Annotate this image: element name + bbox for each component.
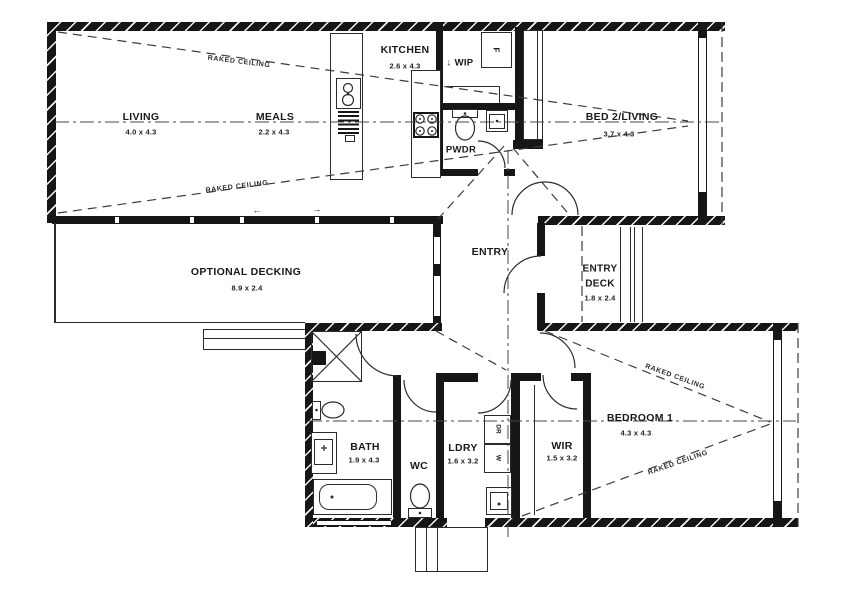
room-label-wip: ↓ WIP <box>447 58 474 69</box>
room-label-entry: ENTRY <box>472 246 509 258</box>
raked-ceiling-line <box>545 331 770 422</box>
raked-ceiling-line <box>58 126 688 213</box>
burner-dot <box>431 118 433 120</box>
burner-dot <box>419 130 421 132</box>
front-door-arc <box>504 256 541 293</box>
room-label-bedroom1: BEDROOM 1 <box>607 412 673 424</box>
raked-ceiling-line <box>522 424 770 516</box>
roof-valley-line <box>438 146 504 219</box>
room-label-decking: OPTIONAL DECKING <box>191 266 301 278</box>
wc-door-arc <box>404 380 436 412</box>
cistern-dot <box>464 112 467 115</box>
entry-double-door-arc <box>512 182 578 215</box>
room-label-entry-deck-1: ENTRY <box>582 264 617 275</box>
roof-valley-line <box>436 331 506 370</box>
slide-arrow-right-icon: → <box>312 204 321 214</box>
basin-dot <box>496 120 499 123</box>
sink-bowl <box>343 95 354 106</box>
room-dims-bed2: 3.7 x 4.3 <box>604 130 635 139</box>
toilet-bowl-wc <box>411 484 430 508</box>
tub-drain-dot <box>498 503 501 506</box>
room-label-ldry: LDRY <box>448 442 477 454</box>
room-label-entry-deck-2: DECK <box>585 279 615 290</box>
hall-door-arc <box>540 333 575 368</box>
toilet-bowl-bath <box>322 402 344 418</box>
room-label-living: LIVING <box>123 111 160 123</box>
plan-linework <box>0 0 854 606</box>
room-dims-ldry: 1.6 x 3.2 <box>448 457 479 466</box>
sink-bowl <box>344 84 353 93</box>
room-label-meals: MEALS <box>256 111 294 123</box>
burner-dot <box>419 118 421 120</box>
shower-screen-lines <box>311 331 362 382</box>
room-label-wc: WC <box>410 460 428 472</box>
room-dims-bath: 1.9 x 4.3 <box>349 456 380 465</box>
ldry-door-arc <box>478 380 511 413</box>
room-dims-entry-deck: 1.8 x 2.4 <box>585 294 616 303</box>
room-dims-decking: 8.9 x 2.4 <box>232 284 263 293</box>
wir-door-arc <box>543 375 577 409</box>
roof-valley-line <box>513 148 572 218</box>
room-label-bed2: BED 2/LIVING <box>586 111 658 123</box>
room-label-bath: BATH <box>350 441 380 453</box>
room-label-wir: WIR <box>551 440 572 452</box>
room-dims-kitchen: 2.6 x 4.3 <box>390 62 421 71</box>
cistern-dot <box>315 409 318 412</box>
room-label-kitchen: KITCHEN <box>381 44 430 56</box>
slide-arrow-left-icon: ← <box>252 205 261 215</box>
raked-ceiling-line <box>58 32 688 121</box>
floor-plan: F DR W <box>0 0 854 606</box>
room-dims-living: 4.0 x 4.3 <box>126 128 157 137</box>
room-dims-meals: 2.2 x 4.3 <box>259 128 290 137</box>
room-label-pwdr: PWDR <box>446 145 476 156</box>
room-dims-bedroom1: 4.3 x 4.3 <box>621 429 652 438</box>
burner-dot <box>431 130 433 132</box>
sink-tap-dot <box>347 93 350 96</box>
room-dims-wir: 1.5 x 3.2 <box>547 454 578 463</box>
bath-door-arc <box>356 334 398 376</box>
cistern-dot <box>419 512 422 515</box>
bath-drain-dot <box>331 496 334 499</box>
tap-cross <box>321 445 327 451</box>
toilet-bowl-pwdr <box>456 116 475 140</box>
